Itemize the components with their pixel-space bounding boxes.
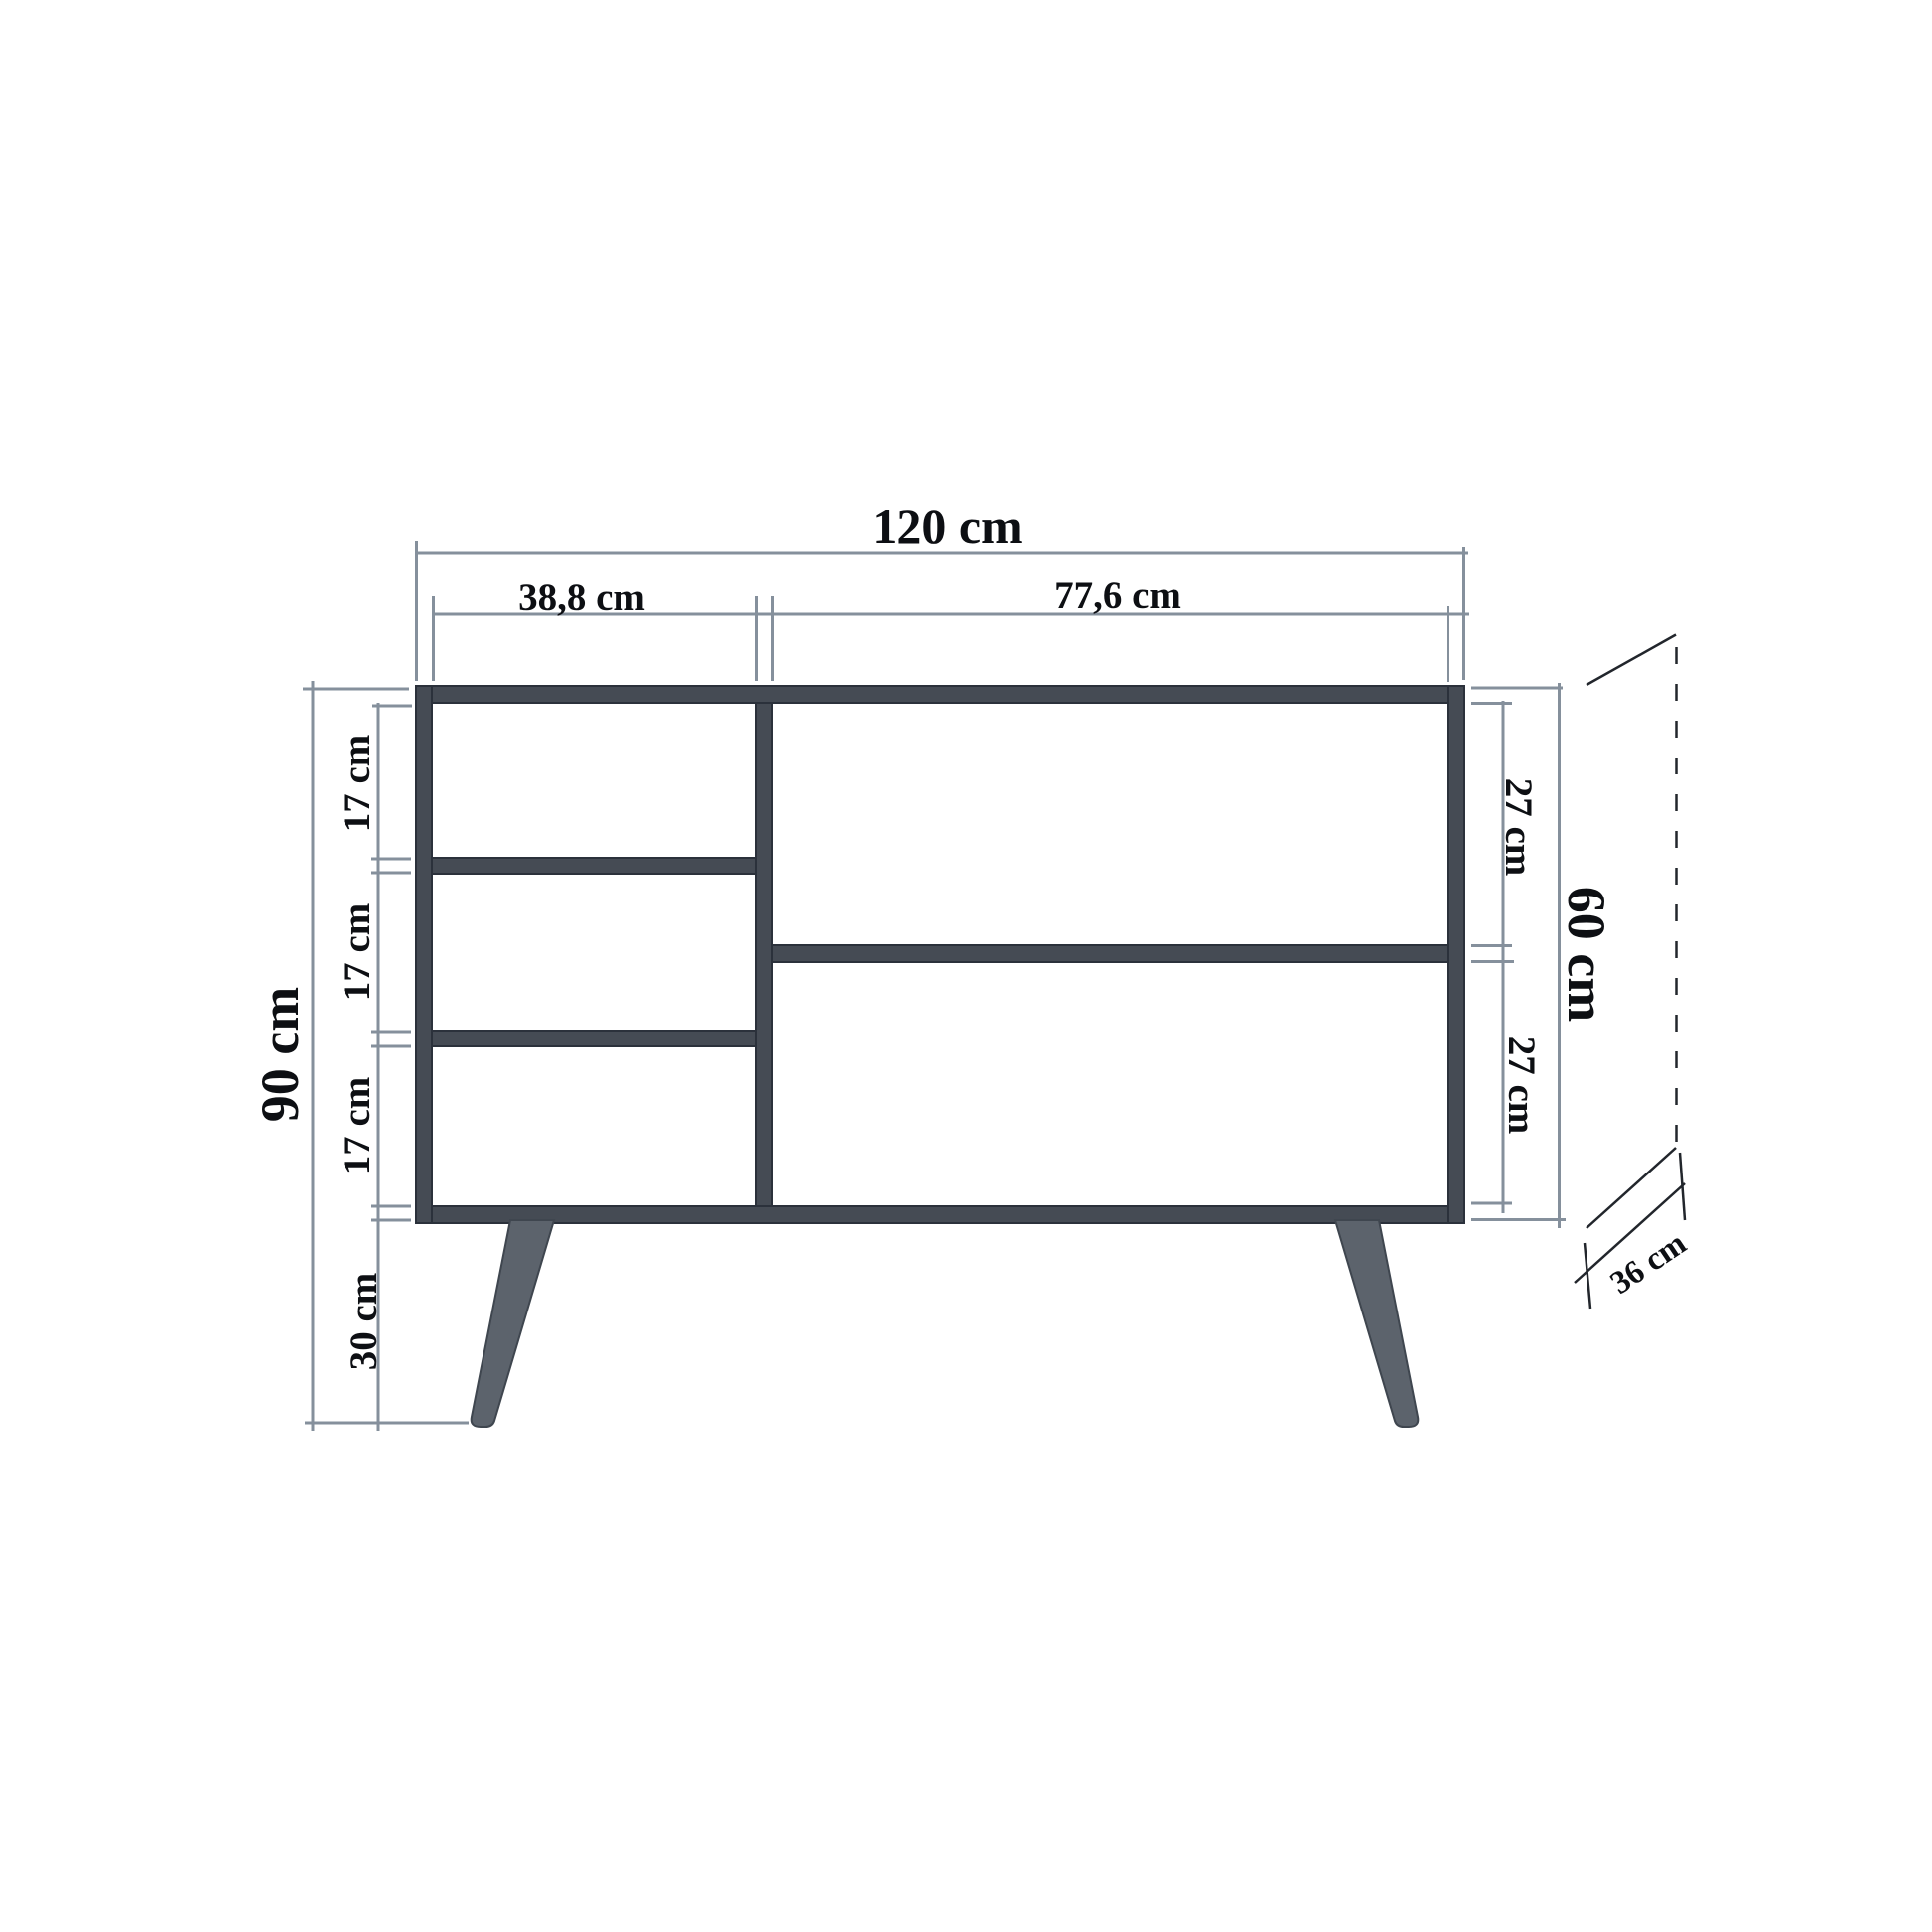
svg-text:38,8 cm: 38,8 cm bbox=[518, 576, 645, 619]
svg-text:60 cm: 60 cm bbox=[1557, 887, 1616, 1022]
svg-text:17 cm: 17 cm bbox=[336, 903, 378, 1002]
svg-text:27 cm: 27 cm bbox=[1500, 1036, 1543, 1135]
svg-text:17 cm: 17 cm bbox=[336, 735, 378, 833]
svg-text:77,6 cm: 77,6 cm bbox=[1054, 574, 1181, 617]
svg-text:17 cm: 17 cm bbox=[336, 1077, 378, 1175]
svg-text:90 cm: 90 cm bbox=[250, 987, 310, 1122]
svg-text:30 cm: 30 cm bbox=[343, 1273, 385, 1371]
svg-text:27 cm: 27 cm bbox=[1497, 778, 1540, 877]
svg-text:120 cm: 120 cm bbox=[872, 498, 1022, 554]
